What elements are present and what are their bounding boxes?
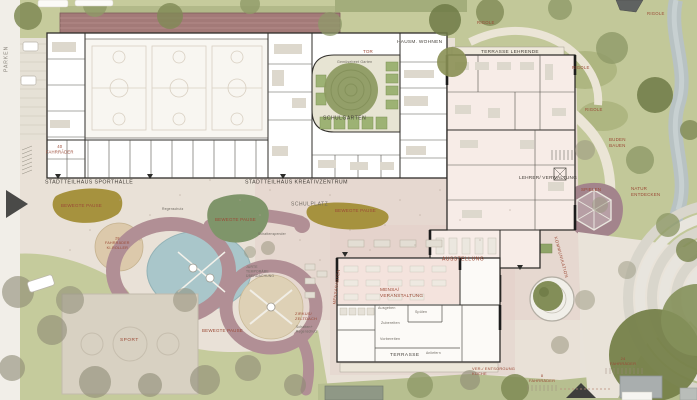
bench-tree bbox=[533, 281, 563, 311]
outbuilding-roof bbox=[325, 386, 383, 400]
parked-car bbox=[21, 76, 36, 85]
site-plan-canvas: PARKEN 40 FAHRRÄDER STADTTEILHAUS SPORTH… bbox=[0, 0, 697, 400]
river bbox=[674, 0, 681, 232]
running-track bbox=[60, 13, 340, 34]
north-building bbox=[47, 33, 447, 178]
parked-car bbox=[23, 42, 38, 51]
terrasse-deck bbox=[340, 363, 498, 372]
schulgarten-courtyard bbox=[312, 55, 400, 132]
planter bbox=[540, 244, 552, 253]
gym-floor bbox=[85, 39, 268, 138]
site-plan-drawing bbox=[0, 0, 697, 400]
terrasse-lehrende-deck bbox=[452, 47, 564, 55]
courtyard-tree bbox=[324, 63, 378, 117]
